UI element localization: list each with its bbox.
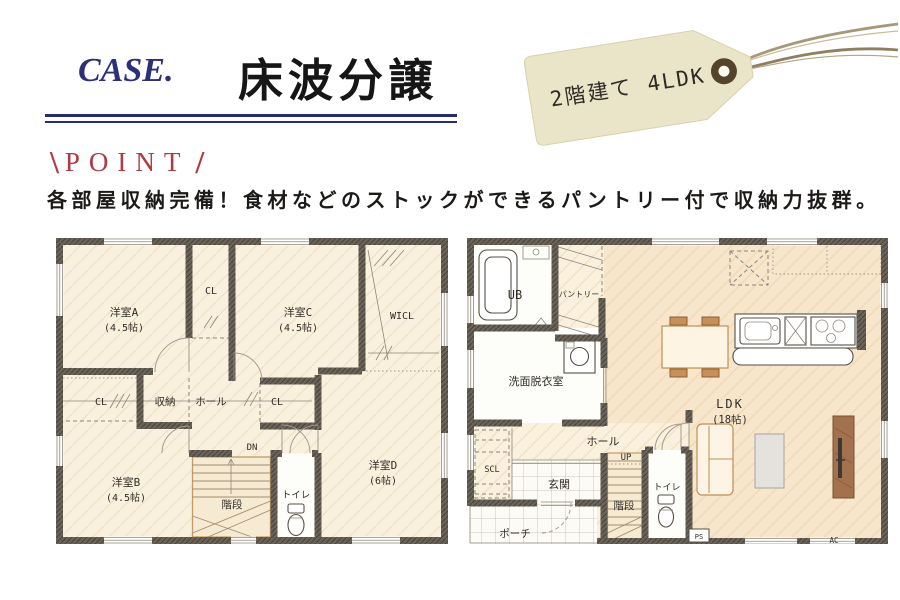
stove-icon (811, 317, 855, 345)
point-label: POINT (65, 147, 190, 177)
porch-tiles (470, 503, 597, 544)
counter-front (733, 348, 853, 365)
ldk-label: LDK (716, 397, 744, 411)
toilet-icon-1f (658, 495, 674, 527)
room-b-label: 洋室B (112, 475, 141, 489)
room-c-label: 洋室C (284, 305, 313, 319)
cl-right-label: CL (271, 397, 283, 408)
ac-label: AC (829, 536, 838, 544)
spec-tag: 2階建て 4LDK (510, 10, 900, 152)
point-heading: \POINT/ (50, 144, 204, 181)
porch-label: ポーチ (499, 528, 531, 540)
stairs-1f-label: 階段 (614, 499, 635, 512)
point-slash-right: / (195, 144, 204, 180)
room-d-label: 洋室D (369, 458, 398, 472)
title-underline-top (45, 114, 457, 117)
toilet-2f-label: トイレ (282, 490, 311, 501)
floorplan-2f: 洋室A (4.5帖) CL 洋室C (4.5帖) WICL CL 収納 ホール … (56, 238, 448, 549)
point-description: 各部屋収納完備！食材などのストックができるパントリー付で収納力抜群。 (47, 184, 877, 213)
floorplan-1f: UB パントリー 洗面脱衣室 LDK (18帖) ホール UP SCL 玄関 ポ… (467, 238, 888, 549)
washroom-label: 洗面脱衣室 (509, 374, 564, 388)
tag-body: 2階建て 4LDK (523, 22, 758, 146)
scl-label: SCL (484, 465, 499, 475)
room-c-size: (4.5帖) (278, 321, 318, 334)
washer-icon (564, 340, 595, 373)
page-title: 床波分譲 (208, 44, 468, 109)
flyer-page: CASE. 床波分譲 2階建て 4LDK \POINT/ 各部屋収納完備！食材な… (0, 0, 900, 600)
room-a-size: (4.5帖) (104, 321, 144, 334)
title-underline-bottom (45, 121, 457, 123)
room-d-size: (6帖) (369, 474, 397, 487)
wicl-label: WICL (390, 311, 414, 322)
coffee-table-icon (755, 434, 784, 488)
dining-set (662, 317, 728, 377)
toilet-1f-label: トイレ (653, 483, 680, 493)
room-a-label: 洋室A (110, 305, 139, 319)
point-slash-left: \ (50, 144, 59, 180)
hall-1f-label: ホール (587, 435, 620, 448)
up-label: UP (621, 453, 632, 463)
room-b-size: (4.5帖) (106, 491, 146, 504)
entrance-label: 玄関 (548, 477, 570, 491)
bath-label: UB (508, 288, 522, 302)
tv-board-icon (833, 416, 854, 498)
hall-2f-label: ホール (195, 396, 227, 408)
ps-label: PS (695, 533, 703, 541)
dining-table-icon (662, 326, 728, 368)
stairs-1f (607, 453, 644, 542)
cl-left-label: CL (95, 397, 107, 408)
toilet-icon-2f (288, 504, 304, 536)
dn-label: DN (247, 443, 258, 453)
pantry-label: パントリー (559, 290, 599, 299)
stairs-2f-label: 階段 (222, 498, 243, 511)
stairs-2f (193, 457, 271, 537)
storage-label: 収納 (155, 395, 176, 408)
cl-top-label: CL (205, 286, 217, 297)
case-label: CASE. (78, 52, 173, 90)
ldk-size: (18帖) (712, 413, 748, 426)
